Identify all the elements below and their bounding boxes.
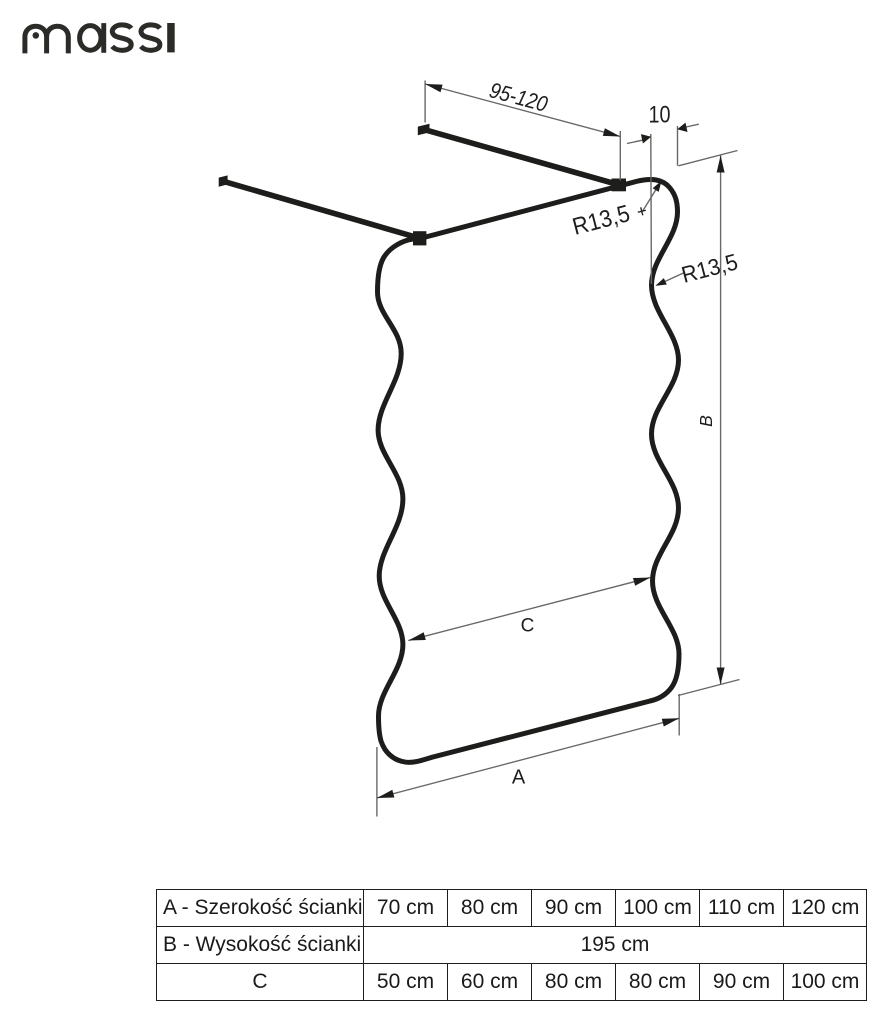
svg-text:C: C <box>521 616 535 637</box>
svg-text:10: 10 <box>649 102 671 129</box>
svg-text:R13,5: R13,5 <box>679 248 741 287</box>
svg-text:95-120: 95-120 <box>487 77 551 117</box>
svg-text:B: B <box>696 415 716 427</box>
svg-text:A: A <box>512 767 526 789</box>
